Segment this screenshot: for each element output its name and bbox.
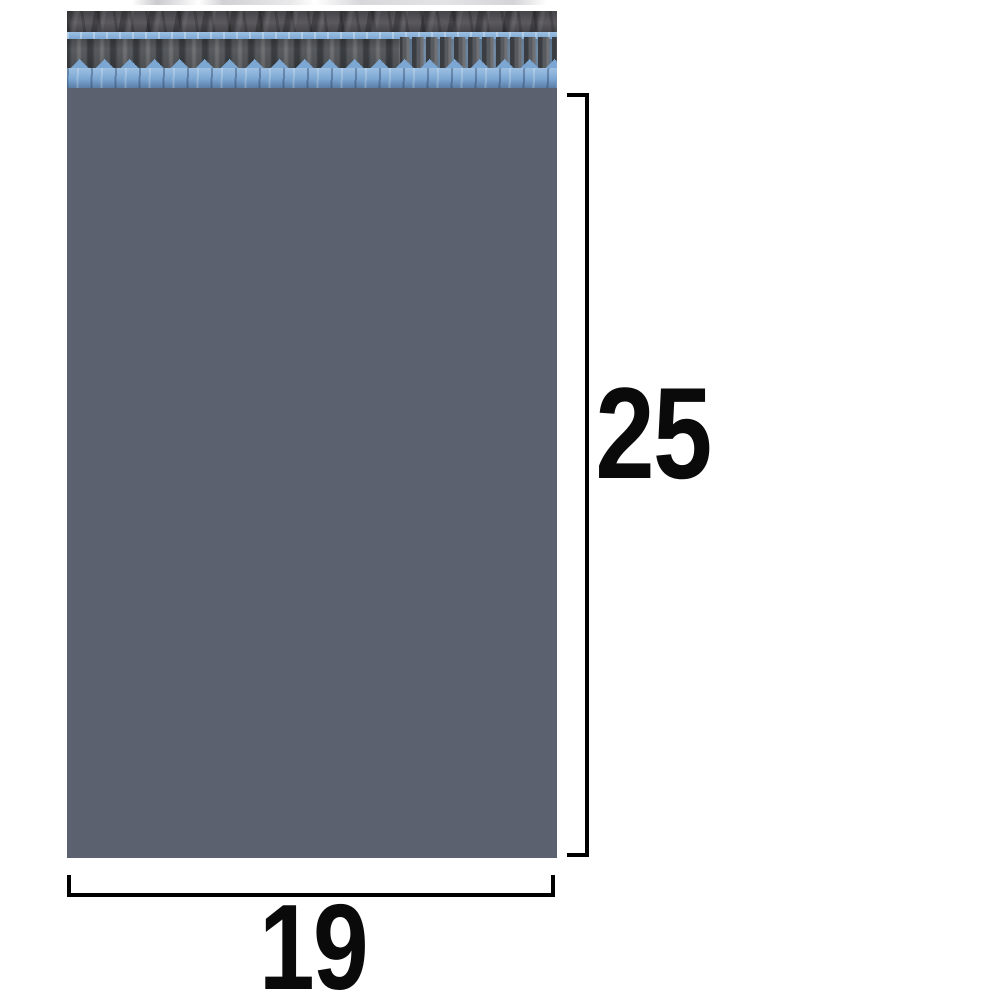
mailer-bag-photo (67, 11, 557, 858)
bag-adhesive-strip (67, 68, 557, 88)
width-dimension-label: 19 (259, 886, 367, 1000)
bag-front-panel (67, 88, 557, 858)
height-dimension-tick-top (567, 93, 589, 97)
height-dimension-label: 25 (595, 368, 710, 498)
photo-edge-artifact (132, 0, 547, 5)
product-image-canvas: 25 19 (0, 0, 1000, 1000)
bag-flap-crinkle-texture (67, 11, 557, 32)
width-dimension-tick-left (67, 875, 71, 897)
width-dimension-tick-right (551, 875, 555, 897)
height-dimension-tick-bottom (567, 853, 589, 857)
height-dimension-line (585, 93, 589, 857)
